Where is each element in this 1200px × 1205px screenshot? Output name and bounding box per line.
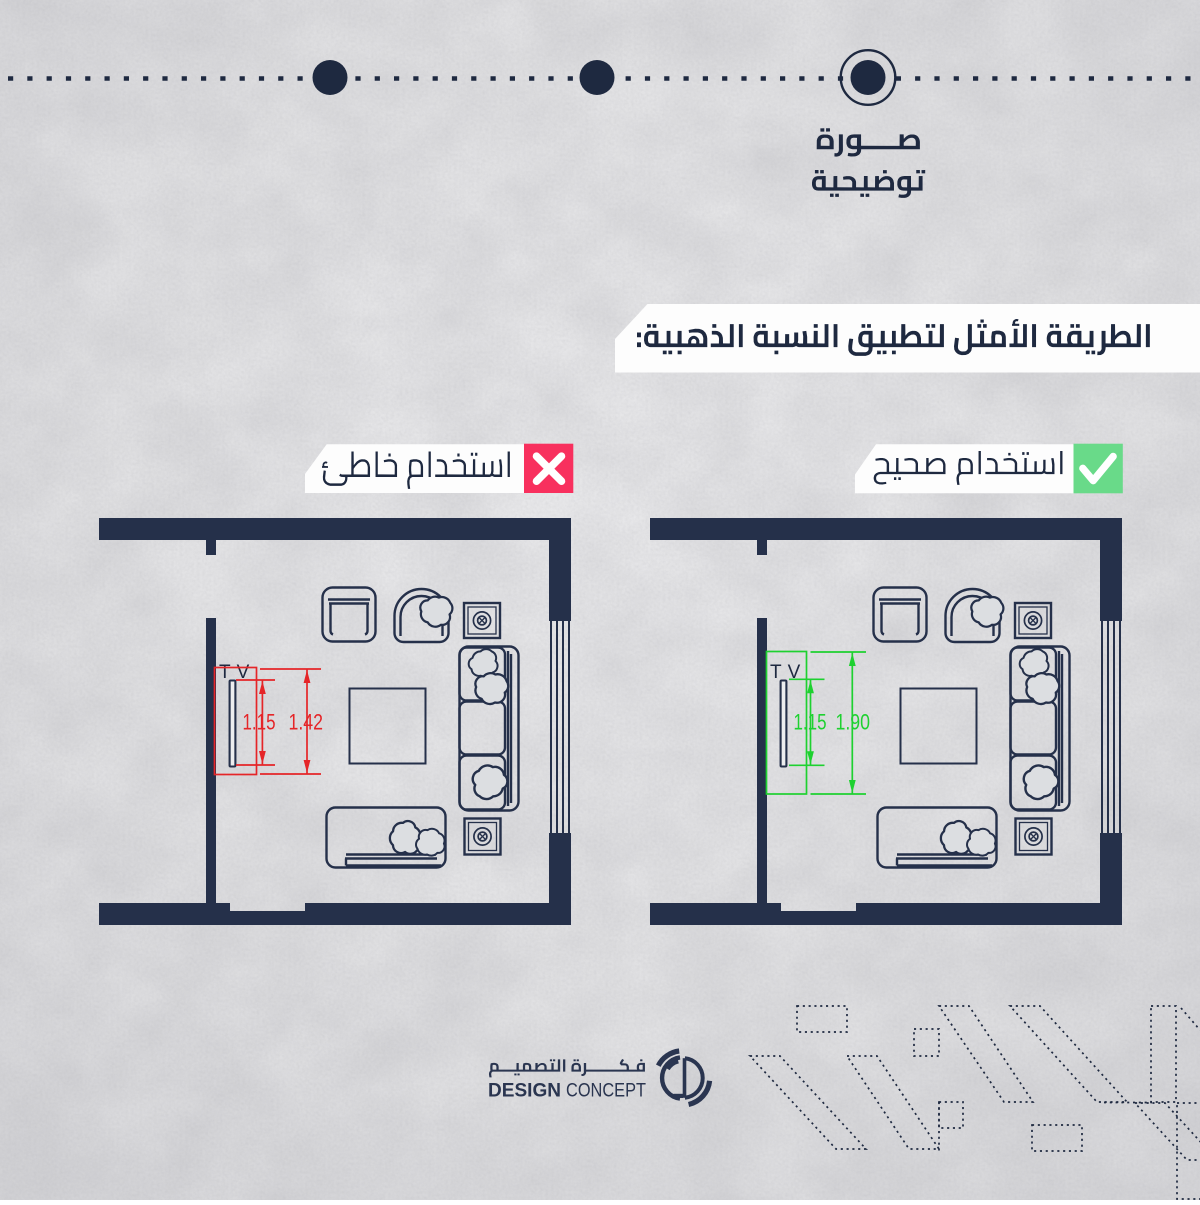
svg-text:CONCEPT: CONCEPT xyxy=(566,1080,646,1102)
svg-text:DESIGN: DESIGN xyxy=(488,1080,561,1102)
svg-text:1.15: 1.15 xyxy=(794,710,827,735)
svg-text:1.15: 1.15 xyxy=(243,710,276,735)
svg-text:1.90: 1.90 xyxy=(836,710,871,735)
svg-text:1.42: 1.42 xyxy=(289,710,324,735)
